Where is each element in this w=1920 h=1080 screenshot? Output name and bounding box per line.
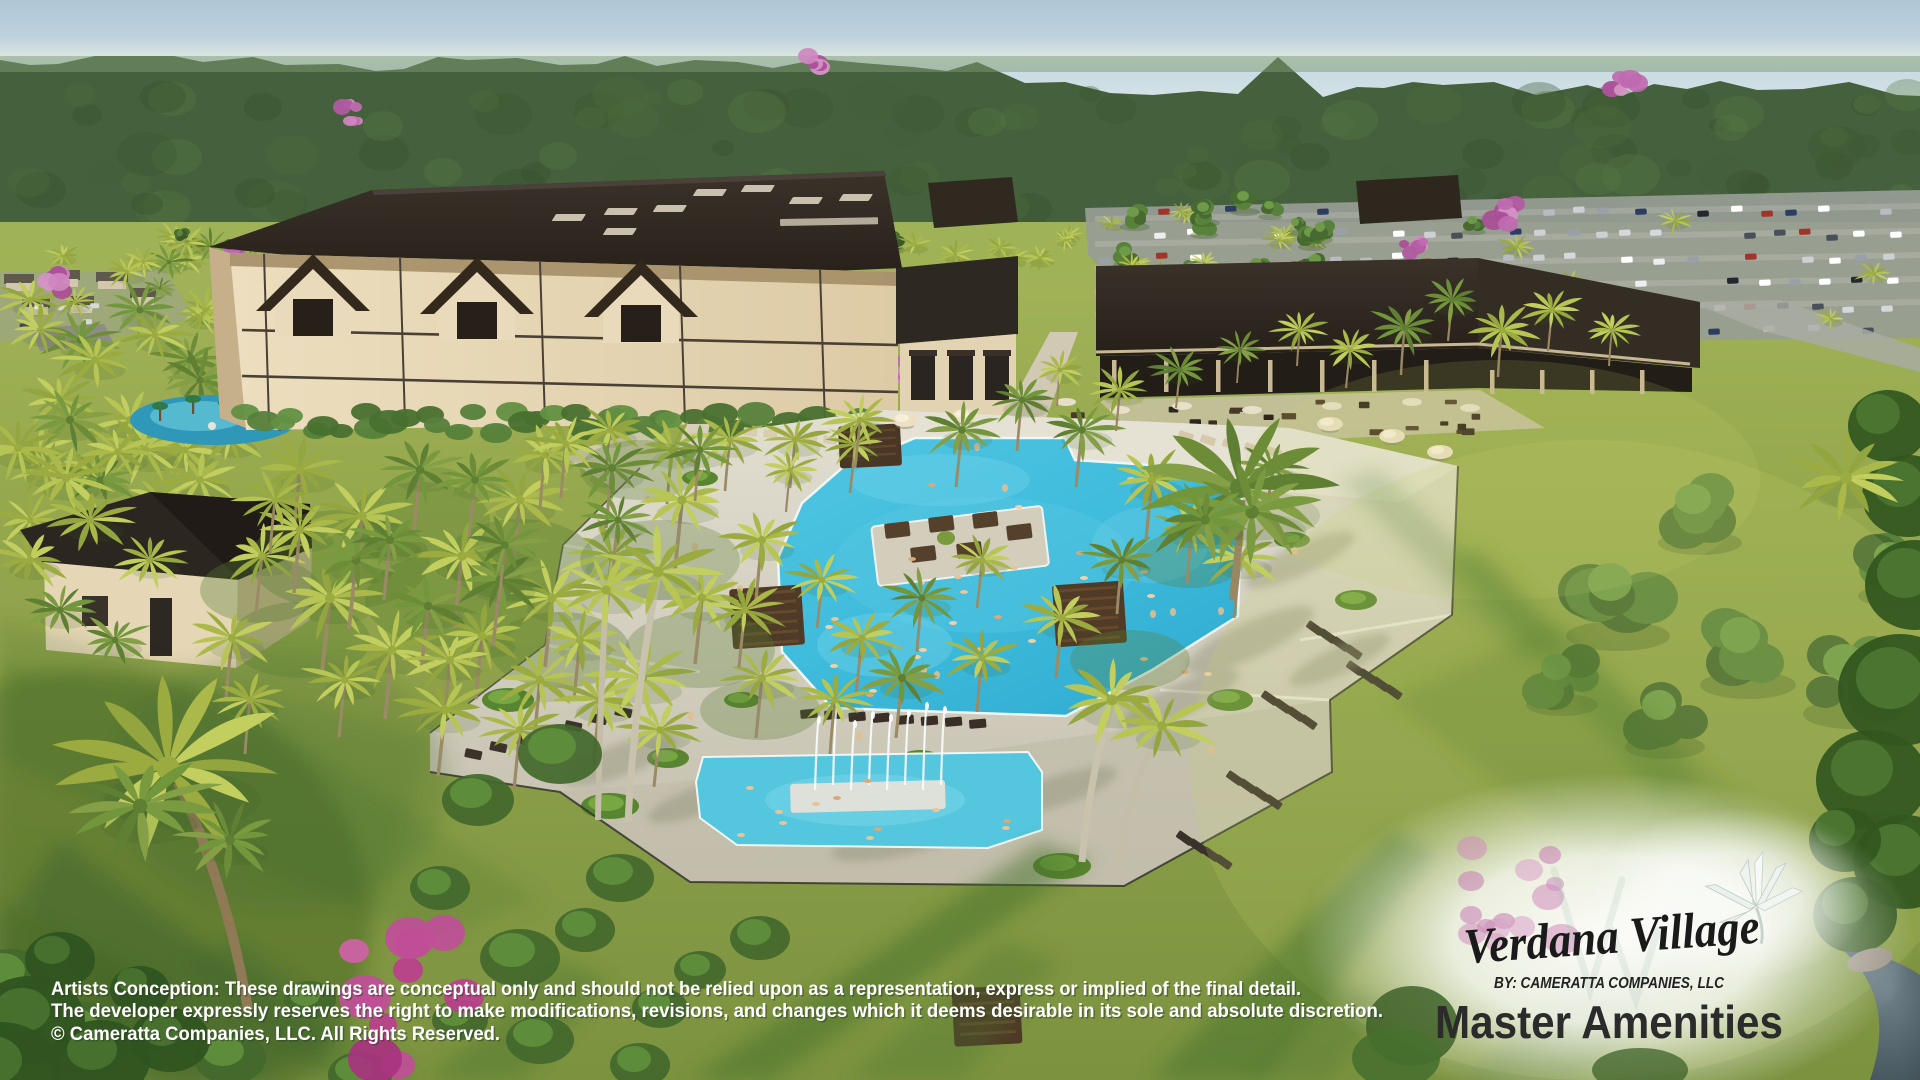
svg-text:Master Amenities: Master Amenities — [1435, 996, 1783, 1048]
svg-text:Artists Conception: These draw: Artists Conception: These drawings are c… — [51, 978, 1301, 1000]
svg-text:The developer expressly reserv: The developer expressly reserves the rig… — [51, 1000, 1383, 1022]
svg-text:BY: CAMERATTA COMPANIES, LLC: BY: CAMERATTA COMPANIES, LLC — [1494, 975, 1724, 992]
svg-text:© Cameratta Companies, LLC. A: © Cameratta Companies, LLC. All Rights R… — [51, 1023, 500, 1045]
